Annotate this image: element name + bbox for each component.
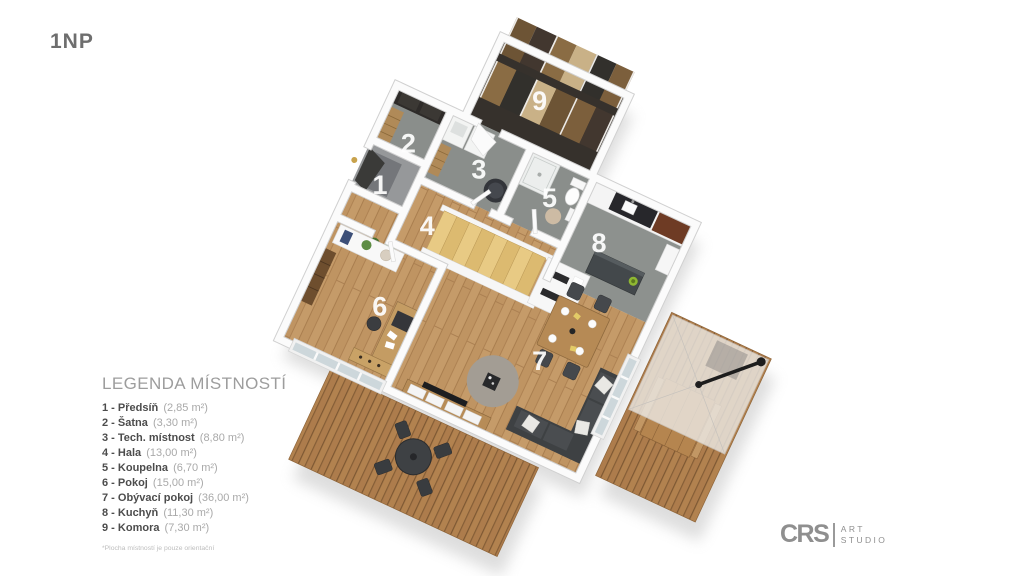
legend-item: 2 - Šatna (3,30 m²) [102, 416, 342, 431]
legend-room-area: (36,00 m²) [198, 492, 249, 504]
legend-room-name: Pokoj [118, 477, 148, 489]
logo-brand: CRS [780, 522, 828, 547]
legend-item: 4 - Hala (13,00 m²) [102, 446, 342, 461]
pillow [574, 420, 589, 435]
legend-item: 5 - Koupelna (6,70 m²) [102, 461, 342, 476]
legend-room-area: (6,70 m²) [173, 462, 218, 474]
bathroom-door [532, 209, 537, 233]
legend-room-name: Kuchyň [118, 507, 158, 519]
studio-logo: CRS ART STUDIO [780, 522, 887, 547]
legend-item: 7 - Obývací pokoj (36,00 m²) [102, 491, 342, 506]
floor-plan-page: 1 2 3 4 5 6 7 8 9 1NP LEGENDA MÍSTNOSTÍ … [0, 0, 1024, 576]
legend-heading: LEGENDA MÍSTNOSTÍ [102, 374, 342, 394]
legend-item: 6 - Pokoj (15,00 m²) [102, 476, 342, 491]
legend-room-area: (2,85 m²) [163, 402, 208, 414]
legend-room-area: (13,00 m²) [146, 447, 197, 459]
logo-studio-text: STUDIO [841, 535, 888, 546]
legend-room-name: Šatna [118, 417, 148, 429]
logo-divider [833, 523, 835, 547]
room-label-5: 5 [542, 183, 557, 213]
logo-art-text: ART [841, 524, 888, 535]
legend-room-name: Koupelna [118, 462, 168, 474]
legend-room-name: Hala [118, 447, 141, 459]
legend-footnote: *Plocha místností je pouze orientační [102, 545, 342, 552]
legend-room-area: (15,00 m²) [153, 477, 204, 489]
legend-room-name: Předsíň [118, 402, 158, 414]
room-label-8: 8 [592, 228, 607, 258]
legend-room-area: (11,30 m²) [163, 507, 213, 519]
room-label-7: 7 [532, 346, 547, 376]
legend-item: 1 - Předsíň (2,85 m²) [102, 401, 342, 416]
room-label-4: 4 [420, 211, 435, 241]
legend-item: 9 - Komora (7,30 m²) [102, 521, 342, 536]
room-label-9: 9 [532, 86, 547, 116]
room-label-6: 6 [372, 291, 387, 321]
legend-room-name: Tech. místnost [118, 432, 195, 444]
legend-room-name: Obývací pokoj [118, 492, 193, 504]
legend-item: 8 - Kuchyň (11,30 m²) [102, 506, 342, 521]
legend-room-area: (3,30 m²) [153, 417, 198, 429]
room-legend: LEGENDA MÍSTNOSTÍ 1 - Předsíň (2,85 m²) … [102, 374, 342, 552]
legend-room-area: (8,80 m²) [200, 432, 245, 444]
door-handle [350, 156, 358, 164]
page-title: 1NP [50, 30, 94, 54]
room-label-1: 1 [373, 170, 388, 200]
room-label-2: 2 [401, 128, 416, 158]
legend-item: 3 - Tech. místnost (8,80 m²) [102, 431, 342, 446]
room-label-3: 3 [471, 155, 486, 185]
legend-room-name: Komora [118, 522, 160, 534]
legend-room-area: (7,30 m²) [165, 522, 210, 534]
